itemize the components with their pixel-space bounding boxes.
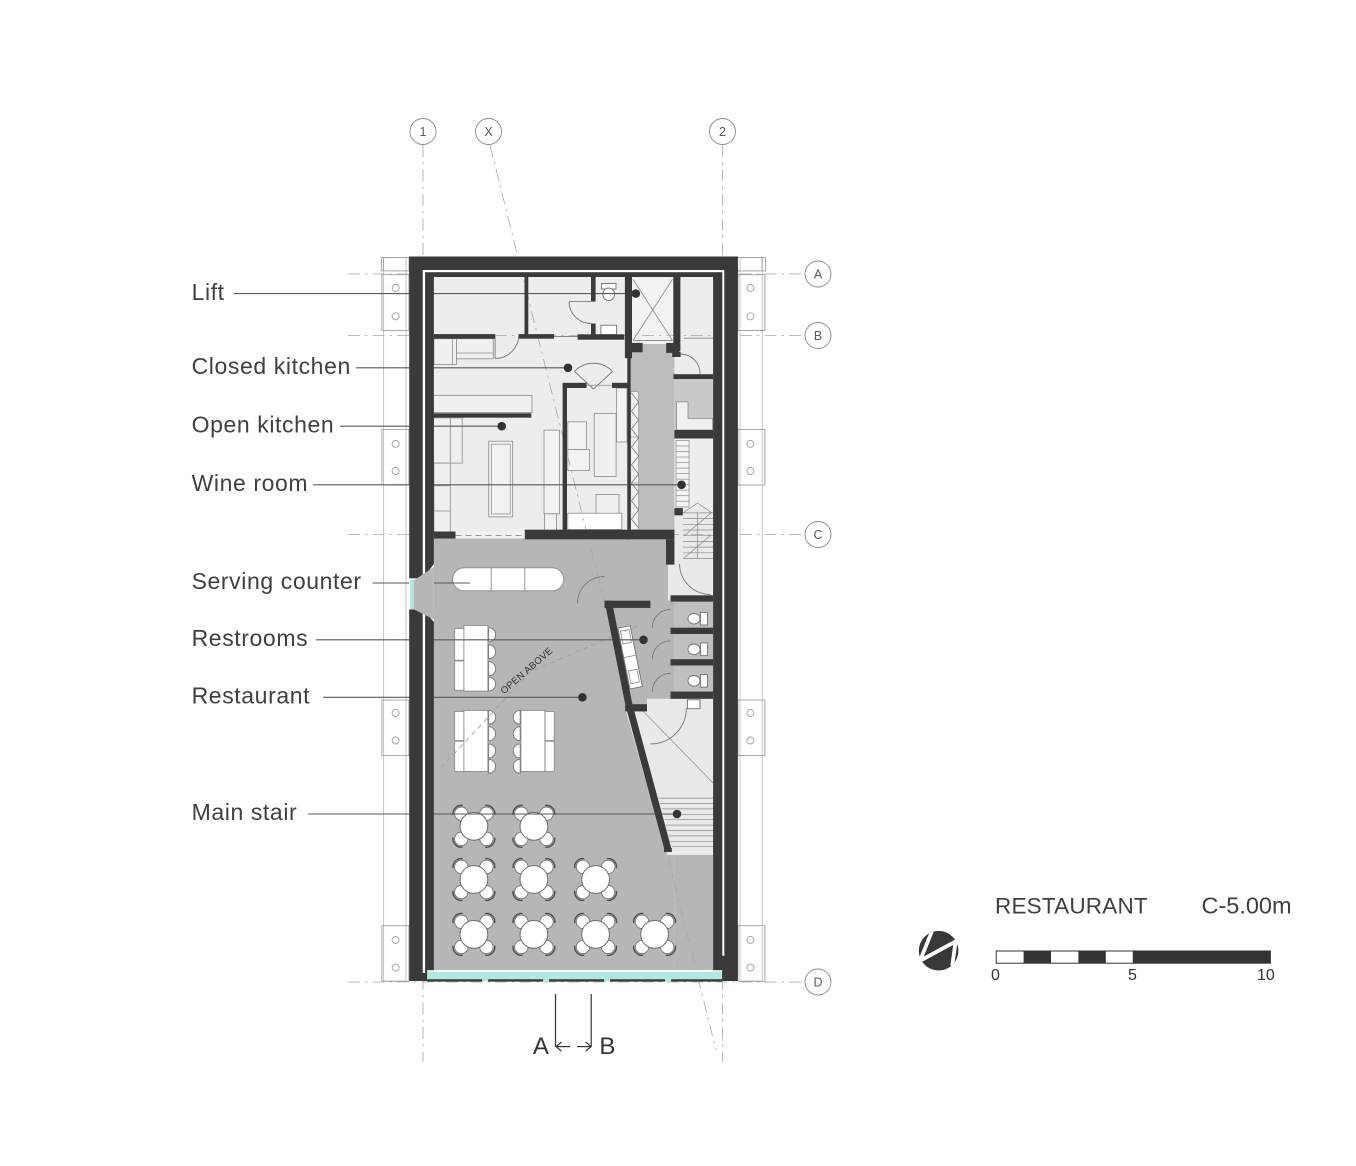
- svg-text:X: X: [484, 125, 493, 139]
- svg-text:C-5.00m: C-5.00m: [1201, 893, 1291, 919]
- svg-text:2: 2: [719, 125, 726, 139]
- svg-text:0: 0: [991, 967, 1000, 984]
- svg-text:C: C: [813, 528, 822, 542]
- svg-text:Lift: Lift: [192, 279, 225, 305]
- svg-text:Restaurant: Restaurant: [192, 683, 311, 709]
- svg-text:10: 10: [1257, 967, 1275, 984]
- svg-text:Open kitchen: Open kitchen: [192, 411, 335, 437]
- svg-text:5: 5: [1128, 967, 1137, 984]
- svg-text:Closed kitchen: Closed kitchen: [192, 353, 351, 379]
- svg-text:Main stair: Main stair: [192, 799, 298, 825]
- svg-text:Serving counter: Serving counter: [192, 568, 362, 594]
- svg-text:A: A: [814, 268, 823, 282]
- svg-text:1: 1: [420, 125, 427, 139]
- svg-text:RESTAURANT: RESTAURANT: [995, 894, 1148, 919]
- svg-text:B: B: [814, 329, 822, 343]
- svg-text:B: B: [599, 1033, 615, 1060]
- svg-text:D: D: [813, 976, 822, 990]
- svg-text:Wine room: Wine room: [192, 470, 309, 496]
- svg-text:A: A: [533, 1033, 549, 1060]
- svg-text:Restrooms: Restrooms: [192, 625, 309, 651]
